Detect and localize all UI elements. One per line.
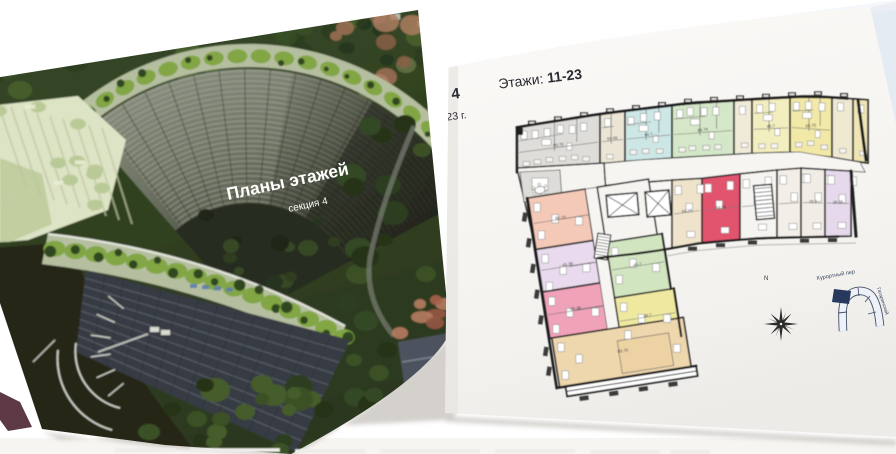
svg-text:38.38: 38.38 (833, 199, 844, 205)
svg-text:44.7: 44.7 (644, 131, 653, 137)
svg-text:N: N (764, 276, 768, 282)
svg-text:64.39: 64.39 (682, 208, 693, 214)
svg-text:45.7: 45.7 (767, 123, 776, 129)
svg-text:64.39: 64.39 (716, 204, 727, 210)
svg-text:39.3: 39.3 (809, 198, 818, 204)
